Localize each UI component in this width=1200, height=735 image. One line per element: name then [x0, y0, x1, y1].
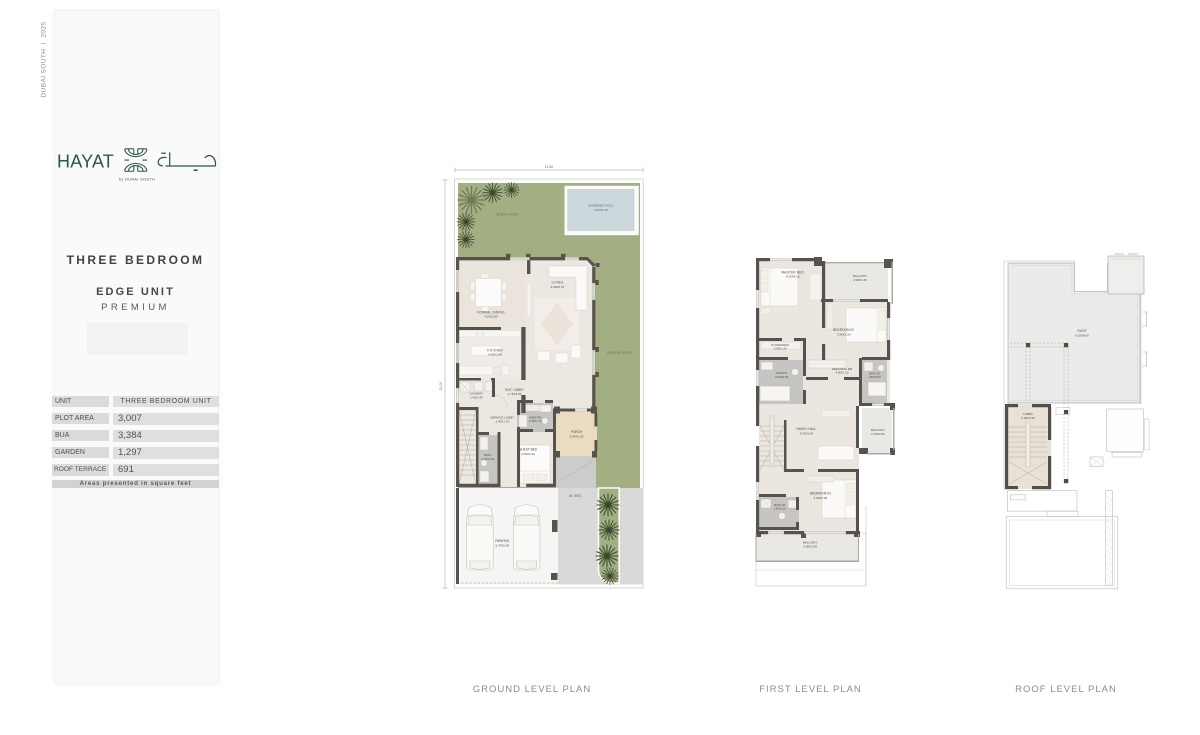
svg-text:3.96X6.75: 3.96X6.75 — [551, 285, 565, 289]
svg-text:HAYAT: HAYAT — [57, 152, 114, 172]
svg-text:11.60: 11.60 — [545, 165, 553, 169]
svg-text:1.90X2.20: 1.90X2.20 — [774, 506, 787, 510]
svg-text:3.96X3.20: 3.96X3.20 — [837, 332, 851, 336]
svg-text:BATH 02: BATH 02 — [869, 372, 880, 376]
svg-text:4.05X2.80: 4.05X2.80 — [488, 353, 502, 357]
svg-text:3.30X4.30: 3.30X4.30 — [814, 496, 828, 500]
svg-text:9.20X8.60: 9.20X8.60 — [1075, 333, 1089, 337]
svg-text:GREEN AREA: GREEN AREA — [607, 351, 632, 355]
svg-text:2.10X2.00: 2.10X2.00 — [871, 432, 885, 436]
svg-text:5.96X2.00: 5.96X2.00 — [803, 545, 817, 549]
svg-text:4.70X3.00: 4.70X3.00 — [799, 431, 813, 435]
svg-text:2.40X1.70: 2.40X1.70 — [495, 419, 509, 423]
svg-text:1.95X1.70: 1.95X1.70 — [529, 419, 542, 423]
svg-text:2.40X2.35: 2.40X2.35 — [570, 434, 584, 438]
svg-text:1.75X3.65: 1.75X3.65 — [508, 392, 522, 396]
svg-text:by DUBAI SOUTH: by DUBAI SOUTH — [119, 178, 155, 182]
svg-text:2.40X1.40: 2.40X1.40 — [470, 395, 483, 399]
svg-text:4.96X1.60: 4.96X1.60 — [853, 278, 867, 282]
svg-text:2.40X1.50: 2.40X1.50 — [482, 457, 495, 461]
svg-text:2.90X1.30: 2.90X1.30 — [774, 346, 787, 350]
svg-text:4.80X2.35: 4.80X2.35 — [594, 208, 608, 212]
svg-text:4.20X2.80: 4.20X2.80 — [484, 315, 498, 319]
svg-text:4.20X4.15: 4.20X4.15 — [786, 275, 800, 279]
svg-text:BATH 03: BATH 03 — [774, 503, 785, 507]
svg-text:2.30X2.30: 2.30X2.30 — [1021, 416, 1035, 420]
svg-text:BACKYARD: BACKYARD — [497, 213, 519, 217]
svg-text:3.90X2.00: 3.90X2.00 — [775, 375, 789, 379]
svg-text:3.00X3.10: 3.00X3.10 — [521, 452, 535, 456]
svg-text:W. DRESSING: W. DRESSING — [771, 343, 789, 347]
svg-text:5.47X5.95: 5.47X5.95 — [495, 544, 509, 548]
svg-text:4.00X1.20: 4.00X1.20 — [835, 371, 849, 375]
svg-text:M. ENT.: M. ENT. — [569, 494, 582, 498]
svg-text:20.00: 20.00 — [439, 382, 443, 391]
svg-text:1.80X2.60: 1.80X2.60 — [868, 375, 881, 379]
